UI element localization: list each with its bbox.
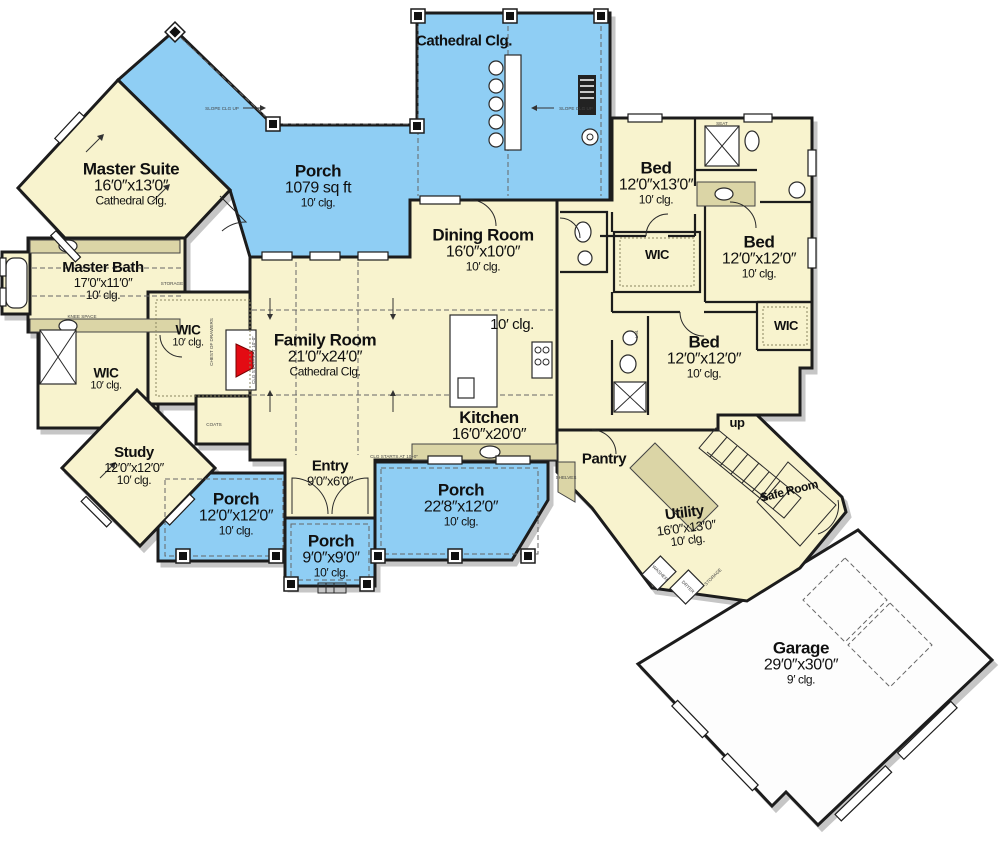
- label-study: Study 12′0″x12′0″ 10′ clg.: [104, 445, 164, 487]
- label-entry: Entry 9′0″x6′0″: [307, 458, 353, 487]
- label-cathedral-clg: Cathedral Clg.: [416, 34, 512, 51]
- floor-plan: STORAGE KNEE SPACE CHEST OF DRAWERS COAT…: [0, 0, 1000, 846]
- label-bed-front: Bed 12′0″x13′0″ 10′ clg.: [619, 160, 693, 207]
- label-garage: Garage 29′0″x30′0″ 9′ clg.: [764, 640, 838, 687]
- label-wic-hall: WIC 10′ clg.: [90, 366, 121, 391]
- label-pantry: Pantry: [582, 452, 626, 469]
- label-wic-right: WIC: [774, 319, 798, 333]
- label-kitchen: Kitchen 16′0″x20′0″: [452, 409, 526, 443]
- shelves-label: SHELVES: [556, 475, 577, 480]
- clg-starts-label-2: CLG STARTS AT 10′-0″: [251, 336, 256, 384]
- label-dining: Dining Room 16′0″x10′0″ 10′ clg.: [432, 227, 533, 274]
- label-porch-center: Porch 9′0″x9′0″ 10′ clg.: [302, 533, 359, 580]
- clg-starts-label-1: CLG STARTS AT 10′-0″: [370, 454, 418, 459]
- storage-label: STORAGE: [161, 281, 183, 286]
- coats-label: COATS: [206, 422, 221, 427]
- label-family: Family Room 21′0″x24′0″ Cathedral Clg.: [274, 332, 376, 379]
- chest-label: CHEST OF DRAWERS: [209, 318, 214, 366]
- label-porch-right: Porch 22′8″x12′0″ 10′ clg.: [424, 482, 498, 529]
- label-back-porch: Porch 1079 sq ft 10′ clg.: [285, 163, 351, 210]
- knee-space-label: KNEE SPACE: [67, 314, 96, 319]
- label-master-suite: Master Suite 16′0″x13′0″ Cathedral Clg.: [83, 161, 179, 208]
- label-wic-beds: WIC: [645, 248, 669, 262]
- seat-label: SEAT: [716, 121, 728, 126]
- label-bed-middle: Bed 12′0″x12′0″ 10′ clg.: [667, 334, 741, 381]
- slope-label-1: SLOPE CLG UP: [205, 106, 239, 111]
- label-up: up: [729, 416, 744, 430]
- label-utility: Utility 16′0″x13′0″ 10′ clg.: [654, 502, 718, 551]
- label-master-bath: Master Bath 17′0″x11′0″ 10′ clg.: [62, 260, 143, 302]
- label-porch-left: Porch 12′0″x12′0″ 10′ clg.: [199, 491, 273, 538]
- label-bed-right: Bed 12′0″x12′0″ 10′ clg.: [722, 234, 796, 281]
- label-wic-master: WIC 10′ clg.: [172, 323, 203, 348]
- slope-label-2: SLOPE CLG UP: [559, 106, 593, 111]
- linen-label: LIN.: [634, 330, 639, 338]
- label-kitchen-clg: 10′ clg.: [490, 317, 534, 333]
